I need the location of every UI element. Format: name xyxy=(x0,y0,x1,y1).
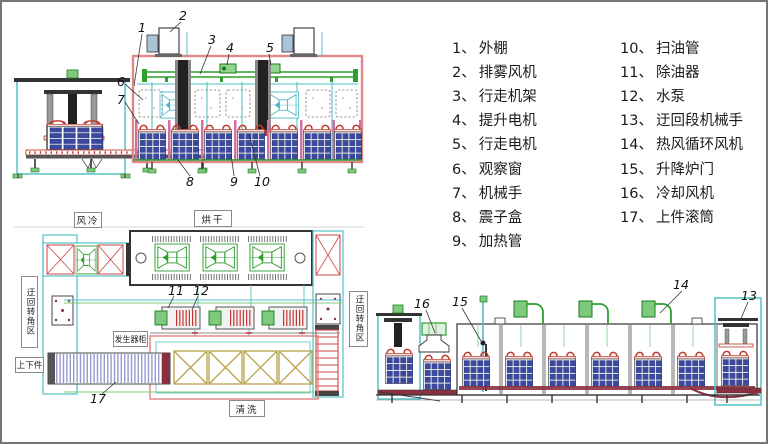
callout-11: 11 xyxy=(168,283,184,298)
plan-view: 11 12 17 xyxy=(14,227,364,406)
legend-column-2: 10、扫油管 11、除油器 12、水泵 13、迂回段机械手 14、热风循环风机 … xyxy=(620,35,743,253)
callout-1: 1 xyxy=(138,20,146,35)
callout-16: 16 xyxy=(414,296,430,311)
legend-item: 2、排雾风机 xyxy=(452,59,612,83)
work-basket xyxy=(205,125,232,159)
label-washing: 清洗 xyxy=(229,400,265,417)
work-basket xyxy=(335,125,362,159)
legend-item: 11、除油器 xyxy=(620,59,743,83)
legend-item: 6、观察窗 xyxy=(452,156,612,180)
hoist-motor xyxy=(67,70,78,78)
callout-4: 4 xyxy=(226,40,234,55)
traveling-frame xyxy=(142,69,358,82)
legend-item: 1、外棚 xyxy=(452,35,612,59)
circulation-fan-plan xyxy=(155,244,189,271)
callout-6: 6 xyxy=(117,74,125,89)
label-load-unload: 上下件 xyxy=(15,357,44,373)
callout-3: 3 xyxy=(208,32,216,47)
callout-10: 10 xyxy=(254,174,270,189)
label-drying: 烘干 xyxy=(194,210,232,227)
turntable xyxy=(316,294,340,324)
exhaust-fan xyxy=(147,28,187,57)
drying-oven-plan xyxy=(130,231,312,285)
work-basket xyxy=(386,349,413,383)
callout-12: 12 xyxy=(193,283,209,298)
legend-item: 12、水泵 xyxy=(620,83,743,107)
work-basket xyxy=(304,125,331,159)
callout-15: 15 xyxy=(452,294,468,309)
drawing-canvas: 1 2 3 4 5 6 7 8 9 10 xyxy=(0,0,768,444)
work-basket xyxy=(271,125,298,159)
legend-item: 15、升降炉门 xyxy=(620,156,743,180)
wash-tanks xyxy=(174,351,312,384)
legend-item: 17、上件滚筒 xyxy=(620,204,743,228)
exhaust-fan xyxy=(282,28,322,57)
work-basket xyxy=(172,125,199,159)
legend-item: 3、行走机架 xyxy=(452,83,612,107)
work-basket xyxy=(463,352,490,386)
work-basket xyxy=(506,352,533,386)
legend-item: 13、迂回段机械手 xyxy=(620,108,743,132)
manipulator xyxy=(175,60,191,136)
elevation-main-view: 1 2 3 4 5 6 7 8 9 10 xyxy=(13,8,362,189)
hot-air-circulation-fan xyxy=(642,301,671,324)
legend-column-1: 1、外棚 2、排雾风机 3、行走机架 4、提升电机 5、行走电机 6、观察窗 7… xyxy=(452,35,612,253)
callout-17: 17 xyxy=(90,391,106,406)
cooling-fan-plan xyxy=(76,246,97,274)
legend-item: 9、加热管 xyxy=(452,229,612,253)
oil-remover-pump-unit xyxy=(209,307,254,336)
legend-item: 7、机械手 xyxy=(452,180,612,204)
work-basket xyxy=(592,352,619,386)
pump-units xyxy=(155,307,307,336)
legend-item: 4、提升电机 xyxy=(452,108,612,132)
label-air-cooling: 风冷 xyxy=(74,212,102,228)
legend-item: 14、热风循环风机 xyxy=(620,132,743,156)
hot-air-circulation-fan xyxy=(514,301,543,324)
callout-13: 13 xyxy=(741,288,757,303)
loading-roller-conveyor xyxy=(48,353,170,384)
legend-item: 16、冷却风机 xyxy=(620,180,743,204)
work-basket xyxy=(139,125,166,159)
work-basket xyxy=(424,355,451,389)
label-detour-corner-right: 迂回转角区 xyxy=(349,291,368,347)
callout-9: 9 xyxy=(230,174,238,189)
work-basket xyxy=(635,352,662,386)
callout-14: 14 xyxy=(673,277,689,292)
callout-7: 7 xyxy=(117,92,125,107)
work-basket xyxy=(678,352,705,386)
circulation-fan-plan xyxy=(203,244,237,271)
callout-2: 2 xyxy=(179,8,187,23)
label-detour-corner-left: 迂回转角区 xyxy=(21,276,38,348)
hot-air-circulation-fan xyxy=(579,301,608,324)
base-frame xyxy=(376,395,760,403)
work-basket xyxy=(47,121,103,150)
callout-8: 8 xyxy=(186,174,194,189)
work-basket xyxy=(722,351,749,385)
oil-remover-pump-unit xyxy=(262,307,307,336)
circulation-fan-plan xyxy=(250,244,284,271)
callout-5: 5 xyxy=(266,40,274,55)
legend-item: 5、行走电机 xyxy=(452,132,612,156)
spray-nozzle xyxy=(268,92,299,118)
parts-legend: 1、外棚 2、排雾风机 3、行走机架 4、提升电机 5、行走电机 6、观察窗 7… xyxy=(452,35,743,253)
drying-oven-elevation xyxy=(457,296,757,395)
work-basket xyxy=(549,352,576,386)
label-generator-cabinet: 发生器柜 xyxy=(113,331,148,347)
oil-remover-pump-unit xyxy=(155,307,200,336)
loading-station xyxy=(13,70,130,178)
legend-item: 10、扫油管 xyxy=(620,35,743,59)
elevation-detour-view: 16 15 14 13 xyxy=(376,277,761,405)
legend-item: 8、震子盒 xyxy=(452,204,612,228)
